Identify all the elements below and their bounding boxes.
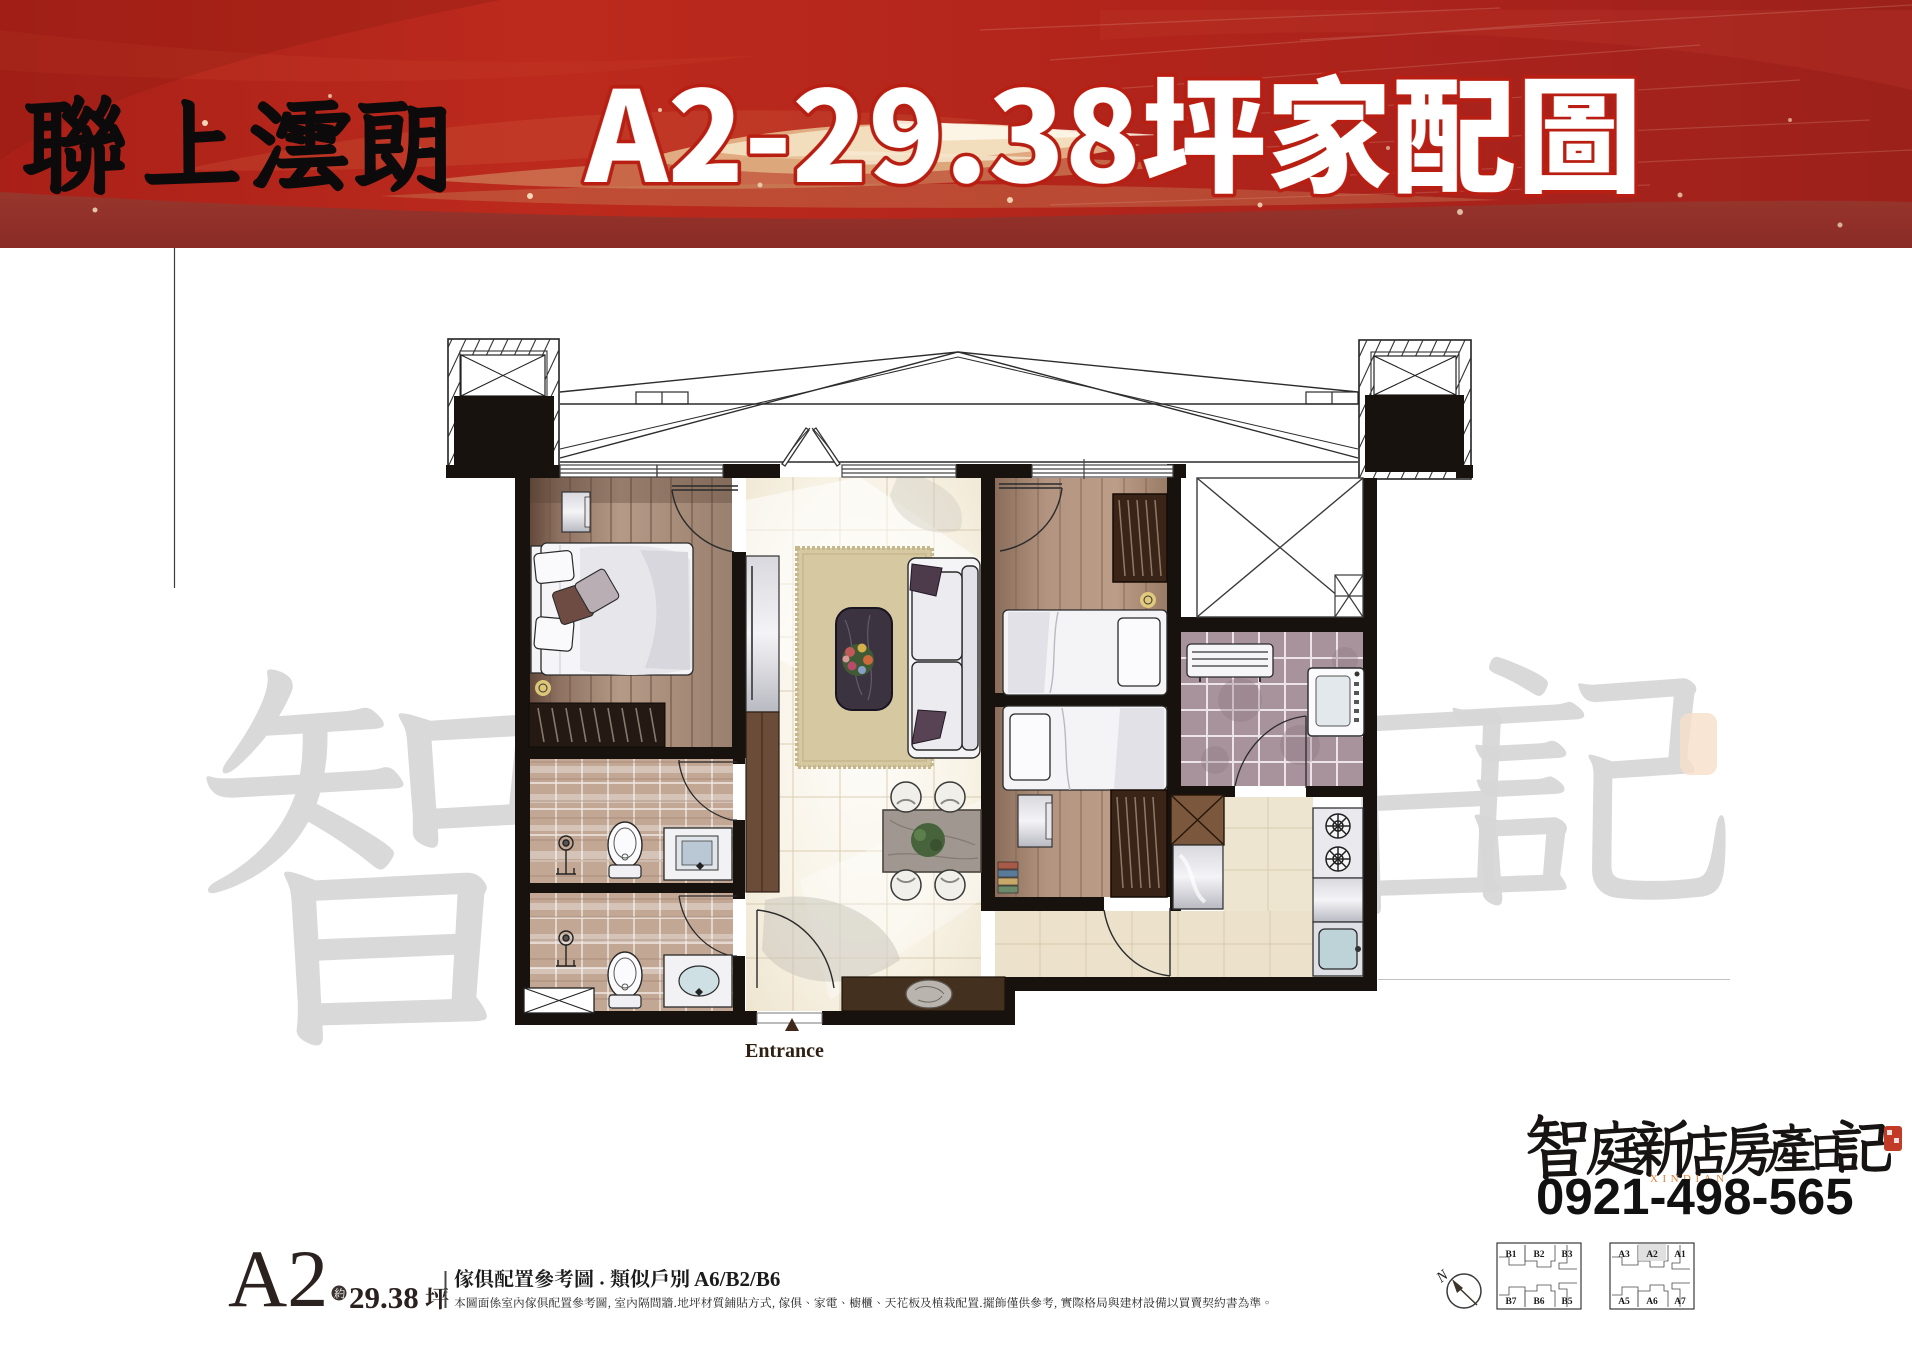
- svg-text:A2: A2: [1646, 1250, 1658, 1260]
- svg-text:B7: B7: [1505, 1297, 1516, 1307]
- svg-text:29.38: 29.38: [349, 1280, 419, 1315]
- svg-text:B2: B2: [1533, 1250, 1544, 1260]
- svg-text:B1: B1: [1505, 1250, 1516, 1260]
- svg-text:B3: B3: [1561, 1250, 1572, 1260]
- svg-text:A5: A5: [1618, 1297, 1630, 1307]
- svg-text:A3: A3: [1618, 1250, 1630, 1260]
- svg-text:A2: A2: [228, 1233, 328, 1324]
- svg-text:Entrance: Entrance: [745, 1040, 824, 1062]
- svg-text:B5: B5: [1561, 1297, 1572, 1307]
- svg-text:0921-498-565: 0921-498-565: [1536, 1168, 1854, 1225]
- svg-text:B6: B6: [1533, 1297, 1544, 1307]
- svg-text:A6: A6: [1646, 1297, 1658, 1307]
- svg-text:A6/B2/B6: A6/B2/B6: [694, 1267, 780, 1291]
- svg-text:A1: A1: [1674, 1250, 1686, 1260]
- svg-text:A7: A7: [1674, 1297, 1686, 1307]
